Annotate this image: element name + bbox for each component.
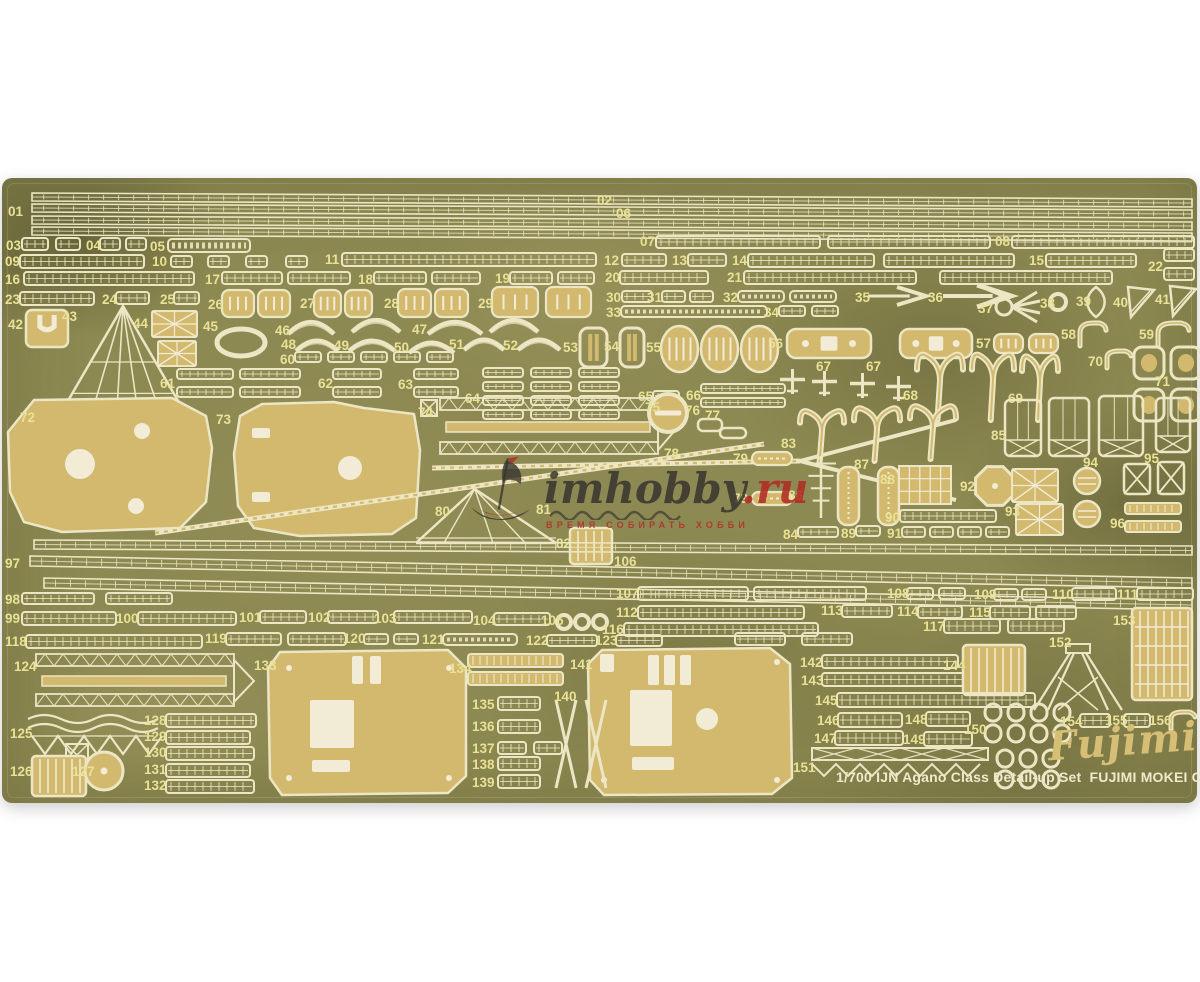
product-photo: 0102030405060708091011121314151617181920… — [0, 0, 1200, 982]
plate-title-text: 1/700 IJN Agano Class Detail-up Set FUJI… — [836, 769, 1196, 789]
watermark-text: imhobby — [544, 464, 741, 513]
watermark-ship-icon — [466, 454, 548, 542]
watermark-squiggle — [550, 510, 682, 520]
fujimi-logo: Fujimi — [1046, 713, 1199, 775]
watermark: imhobby.ru ВРЕМЯ СОБИРАТЬ ХОББИ — [440, 448, 760, 540]
watermark-subtext: ВРЕМЯ СОБИРАТЬ ХОББИ — [546, 520, 756, 530]
watermark-text-line: imhobby.ru — [544, 468, 809, 510]
watermark-domain-suffix: .ru — [741, 464, 808, 513]
